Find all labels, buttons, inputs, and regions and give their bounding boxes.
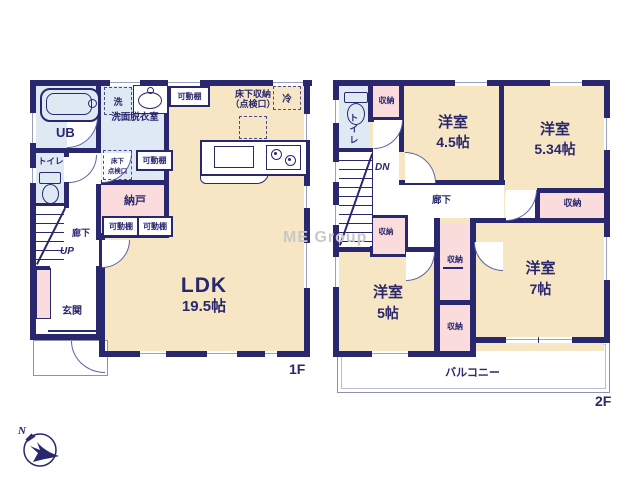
window <box>550 80 582 86</box>
underfloor-storage-label: 床下収納 （点検口） <box>222 89 284 110</box>
shelf-box: 可動棚 <box>137 216 173 237</box>
corridor2-label: 廊下 <box>432 196 451 207</box>
closet-center-top-label: 収納 <box>436 255 474 264</box>
balcony-label: バルコニー <box>425 367 520 380</box>
underfloor-storage-line1: 床下収納 <box>222 89 284 99</box>
underfloor-hatch-line2: 点検口 <box>108 165 128 175</box>
closet-east-label: 収納 <box>545 198 600 208</box>
window <box>304 243 310 288</box>
shelf-label: 可動棚 <box>143 155 167 166</box>
bedroom-b-size: 5.34帖 <box>505 141 605 157</box>
shelf-box: 可動棚 <box>102 216 140 237</box>
window <box>539 337 572 343</box>
entrance-label: 玄関 <box>62 306 82 318</box>
floor2-label: 2F <box>595 393 611 409</box>
corridor1-label: 廊下 <box>72 228 90 238</box>
window <box>207 351 237 357</box>
toilet1-icon <box>39 172 61 184</box>
window <box>304 186 310 208</box>
shelf-label: 可動棚 <box>109 221 133 232</box>
toilet1-bowl-icon <box>42 184 59 204</box>
stove-icon <box>266 145 301 170</box>
bedroom-a-size: 4.5帖 <box>408 134 498 150</box>
compass-n-label: N <box>17 425 27 437</box>
washbasin-icon <box>133 85 168 114</box>
underfloor-hatch-box: 床下 点検口 <box>103 150 132 180</box>
toilet1-label: トイレ <box>38 157 64 167</box>
window <box>372 351 408 357</box>
bathtub-icon <box>40 88 100 122</box>
toilet1-door-arc <box>69 155 97 183</box>
bedroom-a-label: 洋室 <box>408 114 498 131</box>
floor1-label: 1F <box>289 361 305 377</box>
window <box>140 351 166 357</box>
dn-label: DN <box>375 162 389 174</box>
washer-box: 洗 <box>104 87 132 115</box>
window <box>30 168 36 183</box>
ldk-size-label: 19.5帖 <box>150 298 258 315</box>
entrance-cabinet <box>36 268 51 319</box>
window <box>265 351 277 357</box>
ldk-label: LDK <box>150 274 258 298</box>
washer-label: 洗 <box>113 95 122 108</box>
bedroom-d-size: 7帖 <box>498 281 583 297</box>
closet-toilet-side-label: 収納 <box>371 96 402 105</box>
kitchen-sink-icon <box>214 146 254 168</box>
window <box>333 100 339 123</box>
storeroom-label: 納戸 <box>101 195 169 208</box>
window <box>506 337 538 343</box>
washroom-label: 洗面脱衣室 <box>100 113 170 124</box>
window <box>455 80 487 86</box>
floor-plan: 洗 床下 点検口 冷 可動棚 可動棚 可動棚 可動棚 床下収納 （点検口） 洗面… <box>0 0 640 480</box>
window <box>30 113 36 143</box>
bedroom-c-label: 洋室 <box>348 284 428 301</box>
shelf-box: 可動棚 <box>169 86 210 107</box>
kitchen-counter <box>200 140 308 176</box>
closet-small-label: 収納 <box>370 228 402 237</box>
window <box>604 237 610 280</box>
bedroom-b-label: 洋室 <box>505 121 605 138</box>
shelf-box: 可動棚 <box>136 150 173 171</box>
window <box>304 114 310 140</box>
closet-center-bottom-label: 収納 <box>436 322 474 331</box>
toilet2-label: トイレ <box>348 113 358 146</box>
shelf-label: 可動棚 <box>178 91 202 102</box>
bedroom-d-label: 洋室 <box>498 260 583 277</box>
up-label: UP <box>60 246 74 258</box>
window <box>333 257 339 287</box>
bedroom-c-size: 5帖 <box>348 305 428 321</box>
compass-north-icon: N <box>12 420 66 474</box>
underfloor-storage-box <box>239 116 267 139</box>
underfloor-hatch-line1: 床下 <box>111 155 124 165</box>
bath-label: UB <box>56 126 75 141</box>
underfloor-storage-line2: （点検口） <box>222 99 284 109</box>
watermark: ME Group <box>283 229 367 247</box>
toilet2-tank-icon <box>344 92 368 103</box>
shelf-label: 可動棚 <box>143 221 167 232</box>
